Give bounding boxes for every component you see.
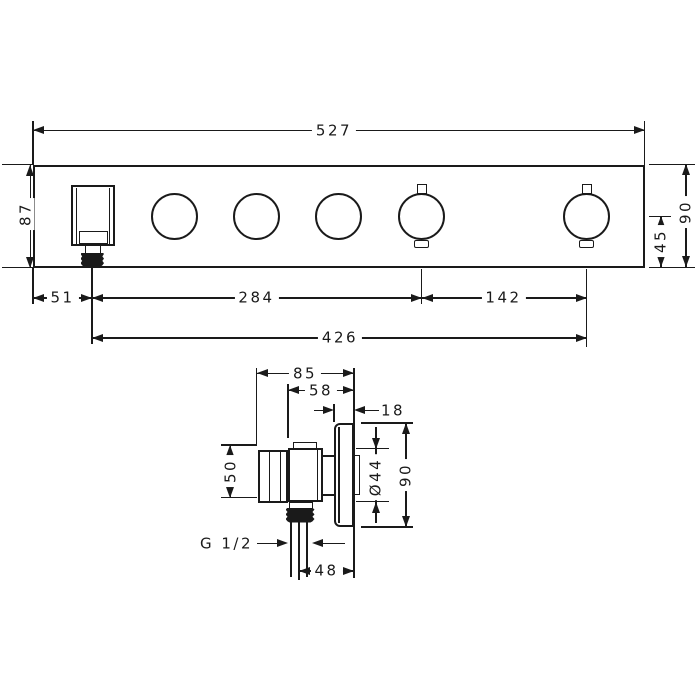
body-edge-line xyxy=(317,450,319,500)
technical-drawing: 527 87 45 90 51 284 142 xyxy=(0,0,700,700)
pipe-line xyxy=(290,522,292,577)
select-knob-1 xyxy=(151,193,198,240)
dim-label-142: 142 xyxy=(481,290,525,307)
dim-label-48: 48 xyxy=(310,563,342,580)
dim-line xyxy=(314,410,324,411)
outlet-thread xyxy=(81,253,105,267)
outlet-thread-side xyxy=(286,508,315,523)
center-line xyxy=(91,267,92,344)
arrow-left-icon xyxy=(92,334,103,342)
arrow-down-icon xyxy=(372,438,380,449)
arrow-left-icon xyxy=(312,539,323,547)
neck-line xyxy=(323,494,335,496)
arrow-left-icon xyxy=(33,294,44,302)
arrow-right-icon xyxy=(343,369,354,377)
arrow-right-icon xyxy=(411,294,422,302)
dim-label-18: 18 xyxy=(381,403,405,418)
dim-label-58: 58 xyxy=(305,382,337,399)
handle-grip-bottom xyxy=(579,240,594,249)
arrow-down-icon xyxy=(226,487,234,498)
wall-feedthrough xyxy=(354,455,360,495)
outlet-neck-line xyxy=(100,246,102,254)
plate-bevel-line xyxy=(338,427,339,523)
escutcheon-plate xyxy=(334,423,354,527)
dim-label-50: 50 xyxy=(222,454,239,486)
handle-grip-top xyxy=(582,184,592,194)
dim-line xyxy=(375,502,376,524)
arrow-right-icon xyxy=(634,126,645,134)
arrow-left-icon xyxy=(92,294,103,302)
arrow-right-icon xyxy=(277,539,288,547)
dim-label-284: 284 xyxy=(234,290,278,307)
handle-grip-bottom xyxy=(414,240,429,249)
outlet-lip xyxy=(289,502,313,509)
holder-block xyxy=(258,450,289,503)
dim-label-90-right: 90 xyxy=(678,196,695,228)
select-knob-3 xyxy=(315,193,362,240)
arrow-up-icon xyxy=(26,165,34,176)
dim-label-45: 45 xyxy=(653,224,670,256)
ext-line xyxy=(256,368,257,446)
dim-line xyxy=(257,543,277,544)
holder-edge-line xyxy=(280,452,282,501)
outlet-edge-line xyxy=(109,188,111,244)
dim-label-527: 527 xyxy=(312,122,356,139)
dim-label-85: 85 xyxy=(289,365,321,382)
dim-label-87: 87 xyxy=(18,198,35,230)
arrow-up-icon xyxy=(402,423,410,434)
handle-grip-top xyxy=(417,184,427,194)
thread-label-g12: G 1/2 xyxy=(200,537,253,552)
select-knob-2 xyxy=(233,193,280,240)
arrow-left-icon xyxy=(33,126,44,134)
dim-label-51: 51 xyxy=(46,290,78,307)
arrow-down-icon xyxy=(402,516,410,527)
arrow-left-icon xyxy=(299,567,310,575)
arrow-down-icon xyxy=(657,256,665,267)
arrow-down-icon xyxy=(682,256,690,267)
arrow-down-icon xyxy=(26,257,34,268)
holder-edge-line xyxy=(269,452,271,501)
arrow-right-icon xyxy=(343,386,354,394)
thermostat-handle-4 xyxy=(398,193,445,240)
dim-line xyxy=(365,410,379,411)
thermostat-handle-5 xyxy=(563,193,610,240)
arrow-left-icon xyxy=(354,406,365,414)
dim-label-diameter-44: Ø44 xyxy=(368,454,385,500)
arrow-right-icon xyxy=(343,567,354,575)
arrow-left-icon xyxy=(257,369,268,377)
dim-line xyxy=(323,543,346,544)
dim-label-426: 426 xyxy=(318,330,362,347)
arrow-right-icon xyxy=(576,294,587,302)
arrow-up-icon xyxy=(682,164,690,175)
outlet-neck-line xyxy=(85,246,87,254)
dim-label-90-side: 90 xyxy=(398,459,415,491)
outlet-detail xyxy=(79,231,108,244)
arrow-left-icon xyxy=(422,294,433,302)
arrow-left-icon xyxy=(288,386,299,394)
arrow-right-icon xyxy=(576,334,587,342)
arrow-right-icon xyxy=(323,406,334,414)
arrow-right-icon xyxy=(81,294,92,302)
neck-line xyxy=(323,455,335,457)
outlet-edge-line xyxy=(76,188,78,244)
